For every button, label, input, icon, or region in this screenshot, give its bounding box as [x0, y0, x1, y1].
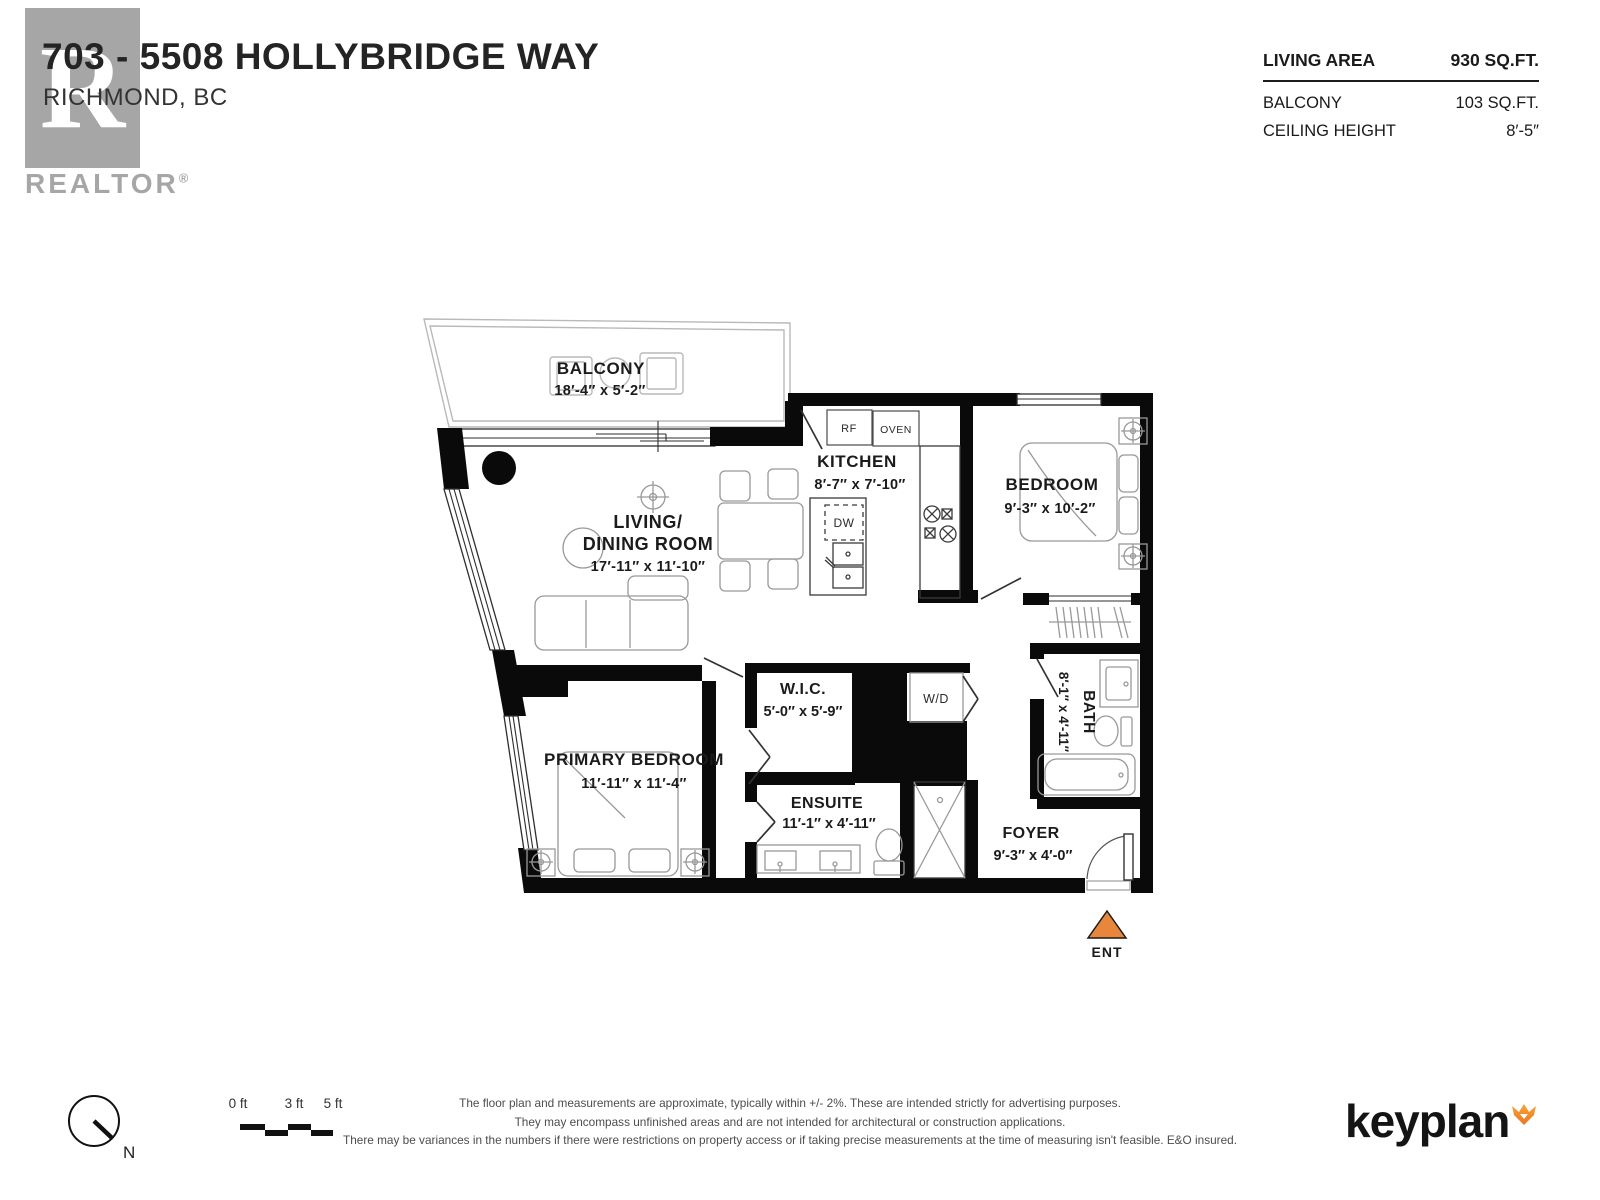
ceiling-light-icon — [637, 481, 669, 513]
disclaimer-line-1: The floor plan and measurements are appr… — [160, 1094, 1420, 1113]
stats-divider — [1263, 80, 1539, 82]
keyplan-logo: keyplan — [1345, 1098, 1537, 1144]
stat-living-area: LIVING AREA 930 SQ.FT. — [1263, 50, 1539, 80]
living-room-window — [444, 421, 715, 452]
kitchen-dims: 8′-7″ x 7′-10″ — [814, 477, 905, 493]
disclaimer-line-2: They may encompass unfinished areas and … — [160, 1113, 1420, 1132]
toilet — [1094, 716, 1132, 746]
wic-label: W.I.C. — [780, 681, 826, 698]
entrance-label: ENT — [1092, 944, 1123, 960]
bedroom-dims: 9′-3″ x 10′-2″ — [1004, 501, 1095, 517]
ensuite-label: ENSUITE — [791, 795, 863, 812]
area-stats: LIVING AREA 930 SQ.FT. BALCONY 103 SQ.FT… — [1263, 50, 1539, 145]
bathtub — [1038, 754, 1135, 795]
living-label-1: LIVING/ — [613, 512, 682, 532]
realtor-wordmark: REALTOR® — [25, 168, 191, 200]
kitchen-sink — [825, 543, 863, 588]
primary-dims: 11′-11″ x 11′-4″ — [581, 776, 686, 792]
stat-label: CEILING HEIGHT — [1263, 117, 1396, 145]
balcony-door-swing — [801, 410, 822, 449]
entrance-triangle-icon — [1088, 911, 1126, 938]
column — [482, 451, 516, 485]
bedroom-label: BEDROOM — [1006, 475, 1099, 494]
sofa — [535, 596, 688, 650]
bath-door — [1037, 659, 1058, 697]
balcony-dims: 18′-4″ x 5′-2″ — [554, 383, 645, 399]
kitchen-counter — [920, 446, 960, 598]
foyer-dims: 9′-3″ x 4′-0″ — [994, 848, 1073, 864]
shower — [914, 782, 965, 878]
bedroom-door — [981, 578, 1021, 599]
disclaimer-line-3: There may be variances in the numbers if… — [160, 1131, 1420, 1150]
stat-value: 103 SQ.FT. — [1456, 89, 1539, 117]
foyer-label: FOYER — [1002, 825, 1059, 842]
stat-value: 8′-5″ — [1506, 117, 1539, 145]
bath-dims: 8′-1″ x 4′-11″ — [1056, 672, 1071, 753]
stat-label: LIVING AREA — [1263, 50, 1375, 71]
dining-table — [718, 469, 803, 591]
stat-label: BALCONY — [1263, 89, 1342, 117]
keyplan-wordmark: keyplan — [1345, 1098, 1509, 1144]
primary-bedroom-furniture — [527, 752, 709, 876]
kitchen-island — [810, 498, 866, 595]
stat-ceiling-height: CEILING HEIGHT 8′-5″ — [1263, 117, 1539, 145]
fox-icon — [1511, 1102, 1537, 1126]
oven-label: OVEN — [880, 424, 912, 436]
entrance-marker: ENT — [1088, 911, 1126, 960]
kitchen-label: KITCHEN — [817, 452, 897, 471]
living-label-2: DINING ROOM — [583, 534, 714, 554]
stat-balcony: BALCONY 103 SQ.FT. — [1263, 89, 1539, 117]
floor-plan: BALCONY 18′-4″ x 5′-2″ LIVING/ DINING RO… — [400, 290, 1160, 970]
primary-bedroom-door — [704, 658, 743, 677]
stat-value: 930 SQ.FT. — [1450, 50, 1539, 71]
page-subtitle: RICHMOND, BC — [43, 84, 228, 112]
dishwasher-label: DW — [834, 516, 855, 530]
kitchen-fixtures — [810, 410, 960, 598]
compass-icon: N — [55, 1082, 150, 1172]
toilet — [874, 829, 904, 875]
entry-door — [1087, 834, 1133, 890]
living-dims: 17′-11″ x 11′-10″ — [591, 559, 706, 575]
fridge-label: RF — [841, 423, 857, 435]
balcony-label: BALCONY — [557, 359, 645, 378]
stove-burners — [924, 506, 956, 542]
washer-dryer-label: W/D — [923, 692, 949, 706]
primary-label: PRIMARY BEDROOM — [544, 750, 724, 769]
closet-hangers — [1049, 607, 1131, 638]
compass-north-label: N — [123, 1143, 135, 1162]
closet-sliding-doors — [1049, 596, 1131, 601]
page-title: 703 - 5508 HOLLYBRIDGE WAY — [42, 36, 599, 78]
ensuite-doors — [757, 802, 775, 842]
ensuite-dims: 11′-1″ x 4′-11″ — [782, 816, 875, 832]
wic-dims: 5′-0″ x 5′-9″ — [764, 704, 843, 720]
registered-mark: ® — [179, 171, 192, 186]
bedroom-window — [1017, 394, 1101, 405]
bath-label: BATH — [1080, 690, 1097, 734]
disclaimer: The floor plan and measurements are appr… — [160, 1094, 1420, 1150]
